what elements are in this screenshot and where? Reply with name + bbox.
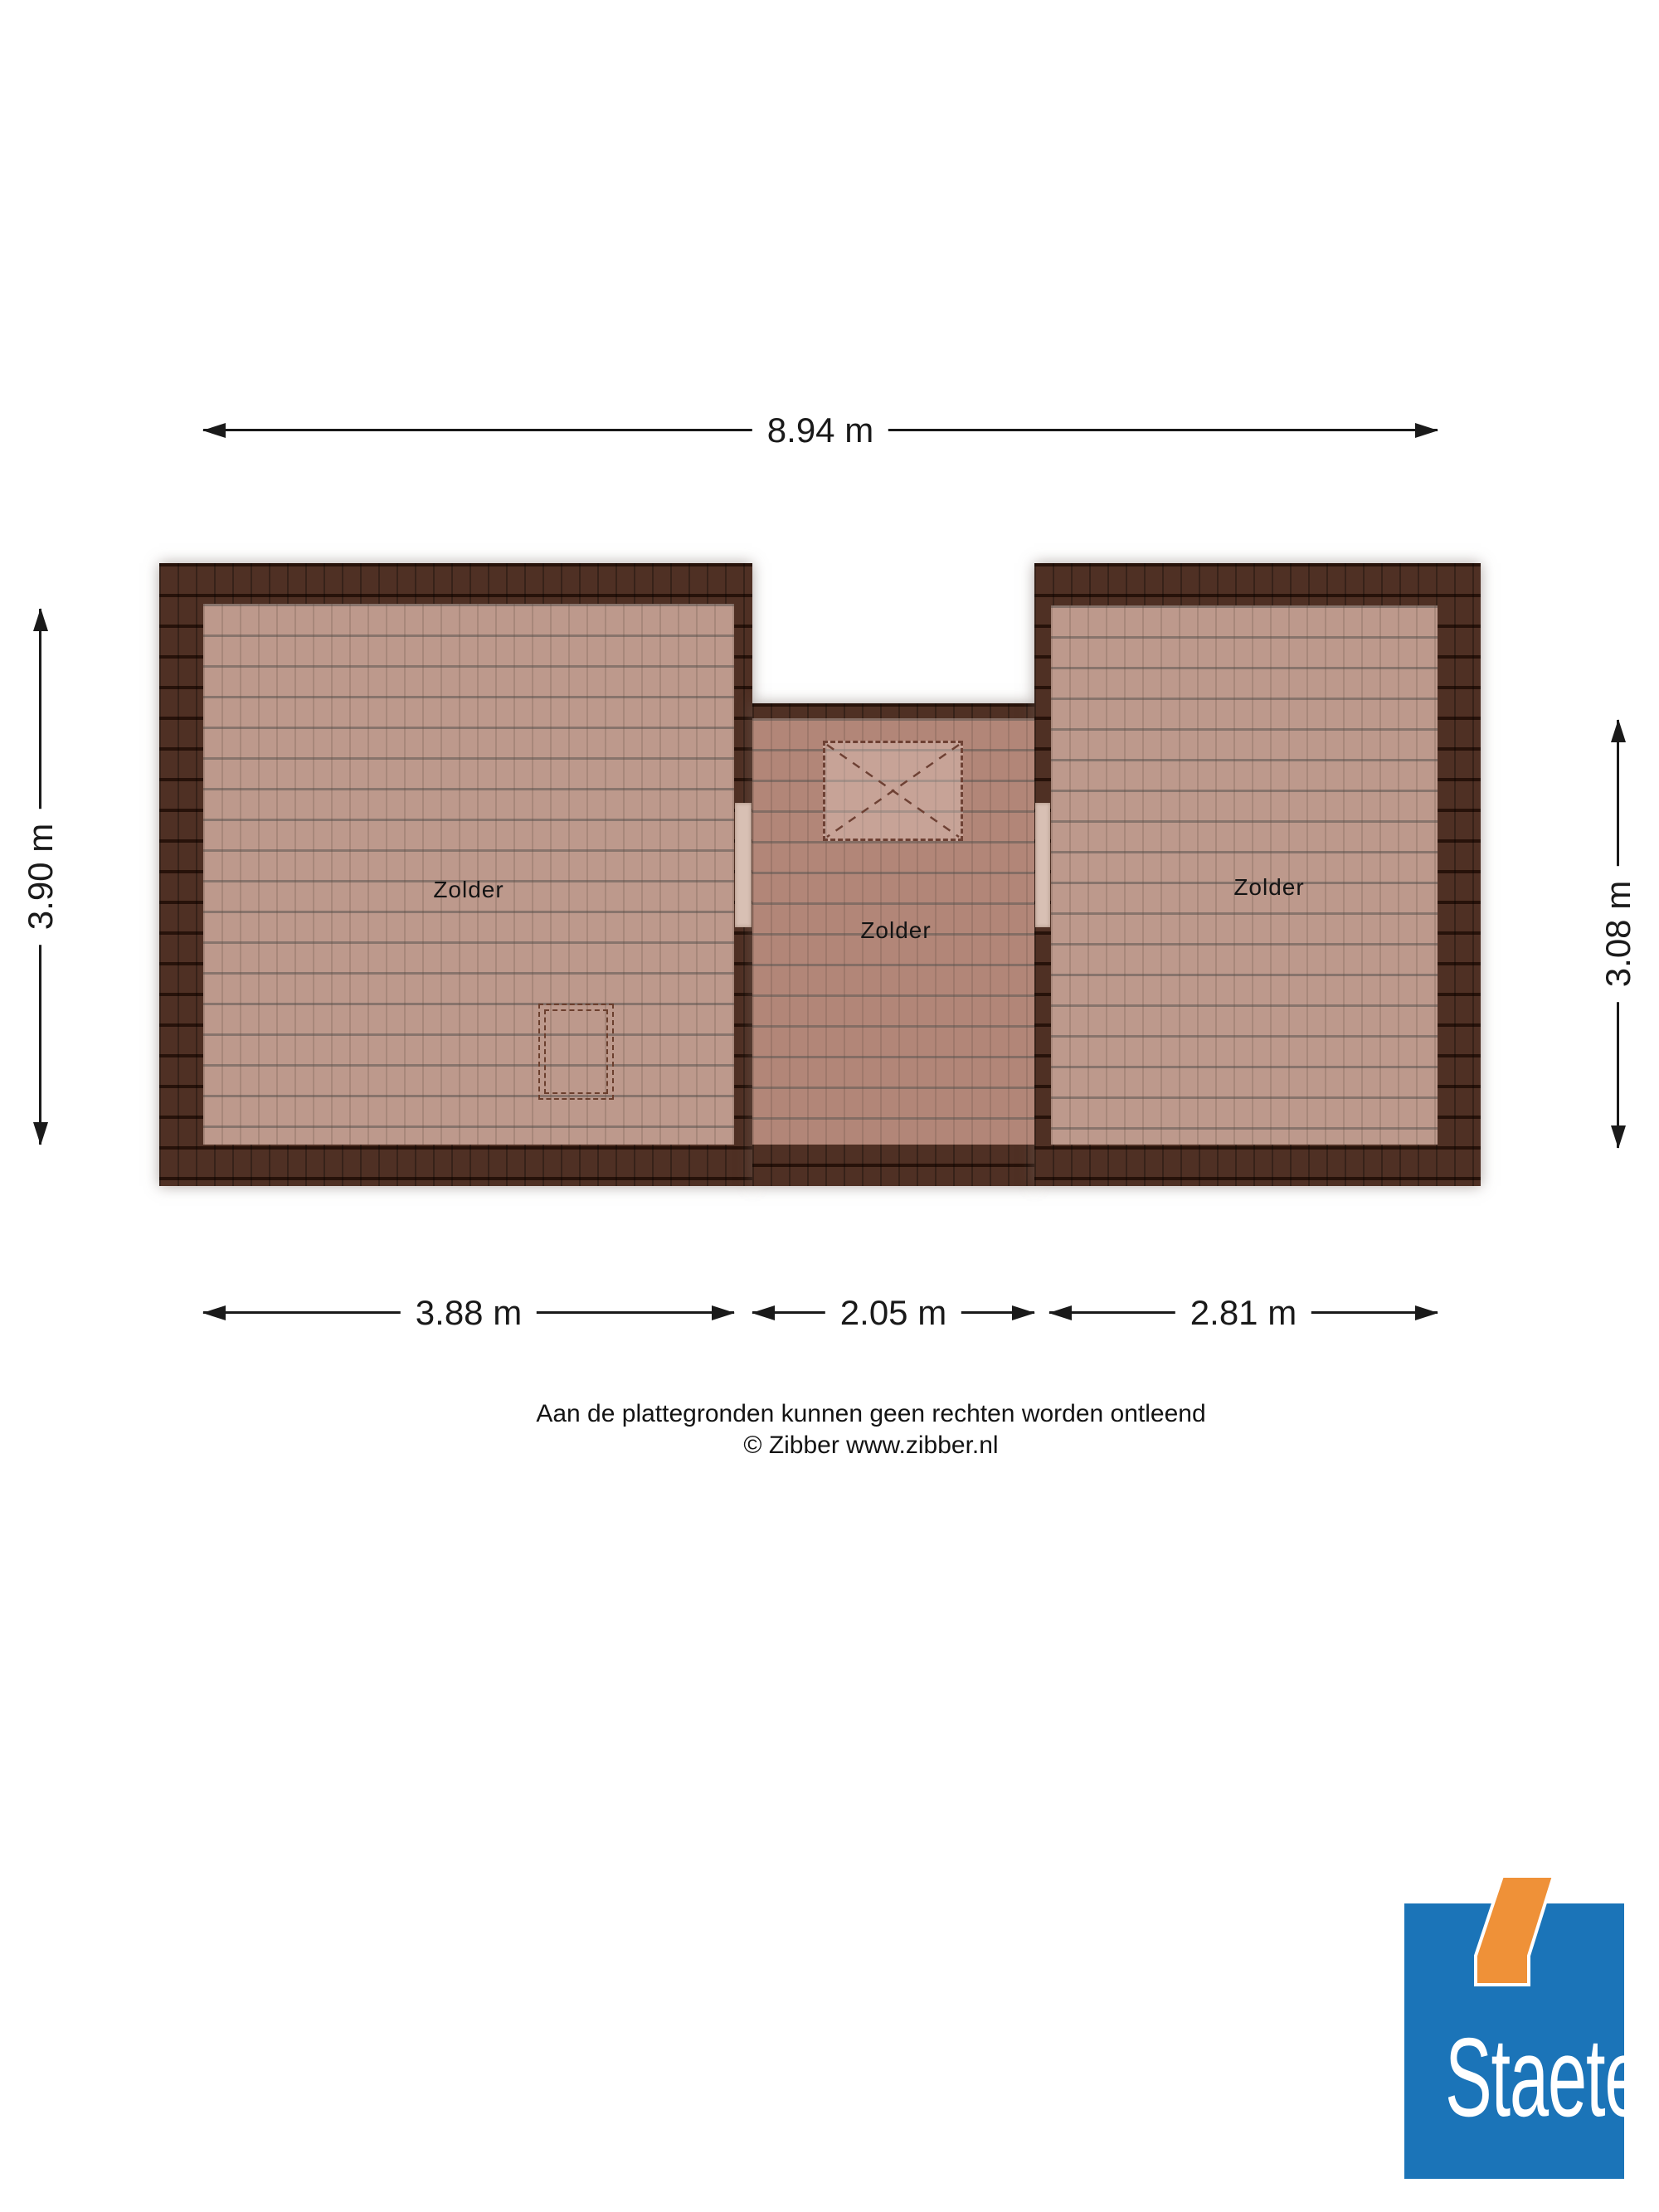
arrowhead-right-icon — [712, 1305, 735, 1320]
logo-wordmark: Staete — [1445, 2021, 1584, 2133]
dimension-left-label: 3.90 m — [19, 809, 62, 945]
dimension-bottom-middle: 2.05 m — [752, 1311, 1034, 1314]
arrowhead-up-icon — [1611, 719, 1626, 742]
logo-flag-icon — [1464, 1864, 1572, 1997]
footer-note: Aan de plattegronden kunnen geen rechten… — [41, 1398, 1659, 1461]
dimension-bottom-left: 3.88 m — [203, 1311, 734, 1314]
skylight-cross-icon — [825, 743, 961, 839]
dimension-bottom-left-label: 3.88 m — [401, 1291, 537, 1334]
door-opening-left-wall — [735, 803, 752, 927]
arrowhead-left-icon — [202, 423, 226, 438]
room-label-left: Zolder — [433, 877, 504, 903]
skylight-window — [823, 741, 963, 841]
arrowhead-left-icon — [1048, 1305, 1072, 1320]
dimension-top: 8.94 m — [203, 429, 1438, 431]
dimension-right-label: 3.08 m — [1597, 866, 1640, 1002]
dimension-right: 3.08 m — [1617, 720, 1619, 1148]
dimension-left: 3.90 m — [39, 609, 41, 1145]
disclaimer-text: Aan de plattegronden kunnen geen rechten… — [41, 1398, 1659, 1430]
dimension-bottom-middle-label: 2.05 m — [825, 1291, 961, 1334]
dimension-bottom-right-label: 2.81 m — [1175, 1291, 1311, 1334]
arrowhead-left-icon — [202, 1305, 226, 1320]
copyright-text: © Zibber www.zibber.nl — [41, 1430, 1659, 1461]
arrowhead-up-icon — [33, 608, 48, 631]
room-label-right: Zolder — [1233, 874, 1304, 901]
room-label-middle: Zolder — [860, 917, 931, 944]
dimension-top-label: 8.94 m — [752, 409, 888, 452]
arrowhead-down-icon — [33, 1122, 48, 1145]
arrowhead-right-icon — [1012, 1305, 1035, 1320]
arrowhead-left-icon — [752, 1305, 775, 1320]
arrowhead-down-icon — [1611, 1125, 1626, 1149]
door-opening-right-wall — [1035, 803, 1050, 927]
dimension-bottom-right: 2.81 m — [1049, 1311, 1438, 1314]
hatch-opening — [538, 1004, 614, 1100]
hatch-opening-inner — [544, 1009, 608, 1094]
arrowhead-right-icon — [1415, 423, 1438, 438]
arrowhead-right-icon — [1415, 1305, 1438, 1320]
room-left-floor — [203, 604, 734, 1145]
